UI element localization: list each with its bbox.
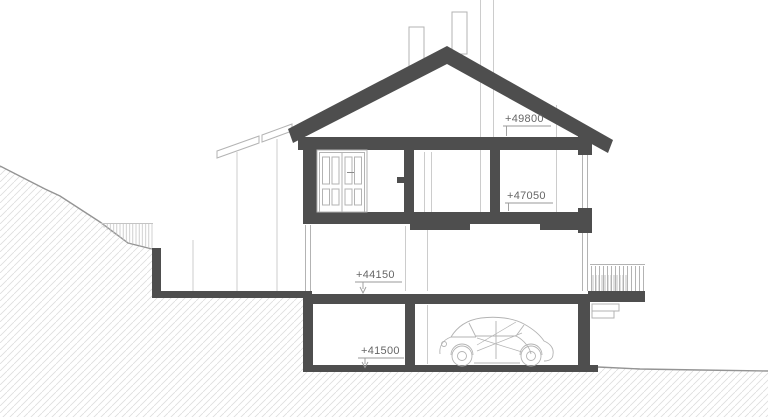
terrace-slab [152,291,312,298]
basement-left-wall [303,296,313,370]
balcony-slab [588,291,645,302]
upper-interior-wall-1 [404,150,414,213]
slab-tab-2 [540,224,578,230]
upper-floor-left-wall [303,150,317,213]
ridge-level-label: +49800 [505,113,544,125]
attic-floor-level-label: +47050 [507,190,546,202]
basement-right-wall [578,302,590,365]
basement-ceiling-slab [303,294,590,304]
balcony-step-2 [592,311,614,318]
bottom-slab [303,365,598,372]
first-floor-level-label: +44150 [356,269,395,281]
chimney-2 [452,12,467,54]
retaining-wall [152,248,161,293]
upper-interior-wall-2 [490,150,500,213]
door-stop-tick [397,177,404,183]
balcony-step-1 [592,304,619,311]
attic-floor-slab [298,137,592,150]
slab-tab-1 [410,224,470,230]
basement-floor-level-label: +41500 [361,345,400,357]
upper-right-lintel [578,132,592,155]
basement-interior-wall [405,302,415,365]
section-drawing-canvas: +49800 +47050 +44150 +41500 [0,0,768,417]
entry-door [317,150,367,212]
upper-floor-slab [303,212,592,224]
